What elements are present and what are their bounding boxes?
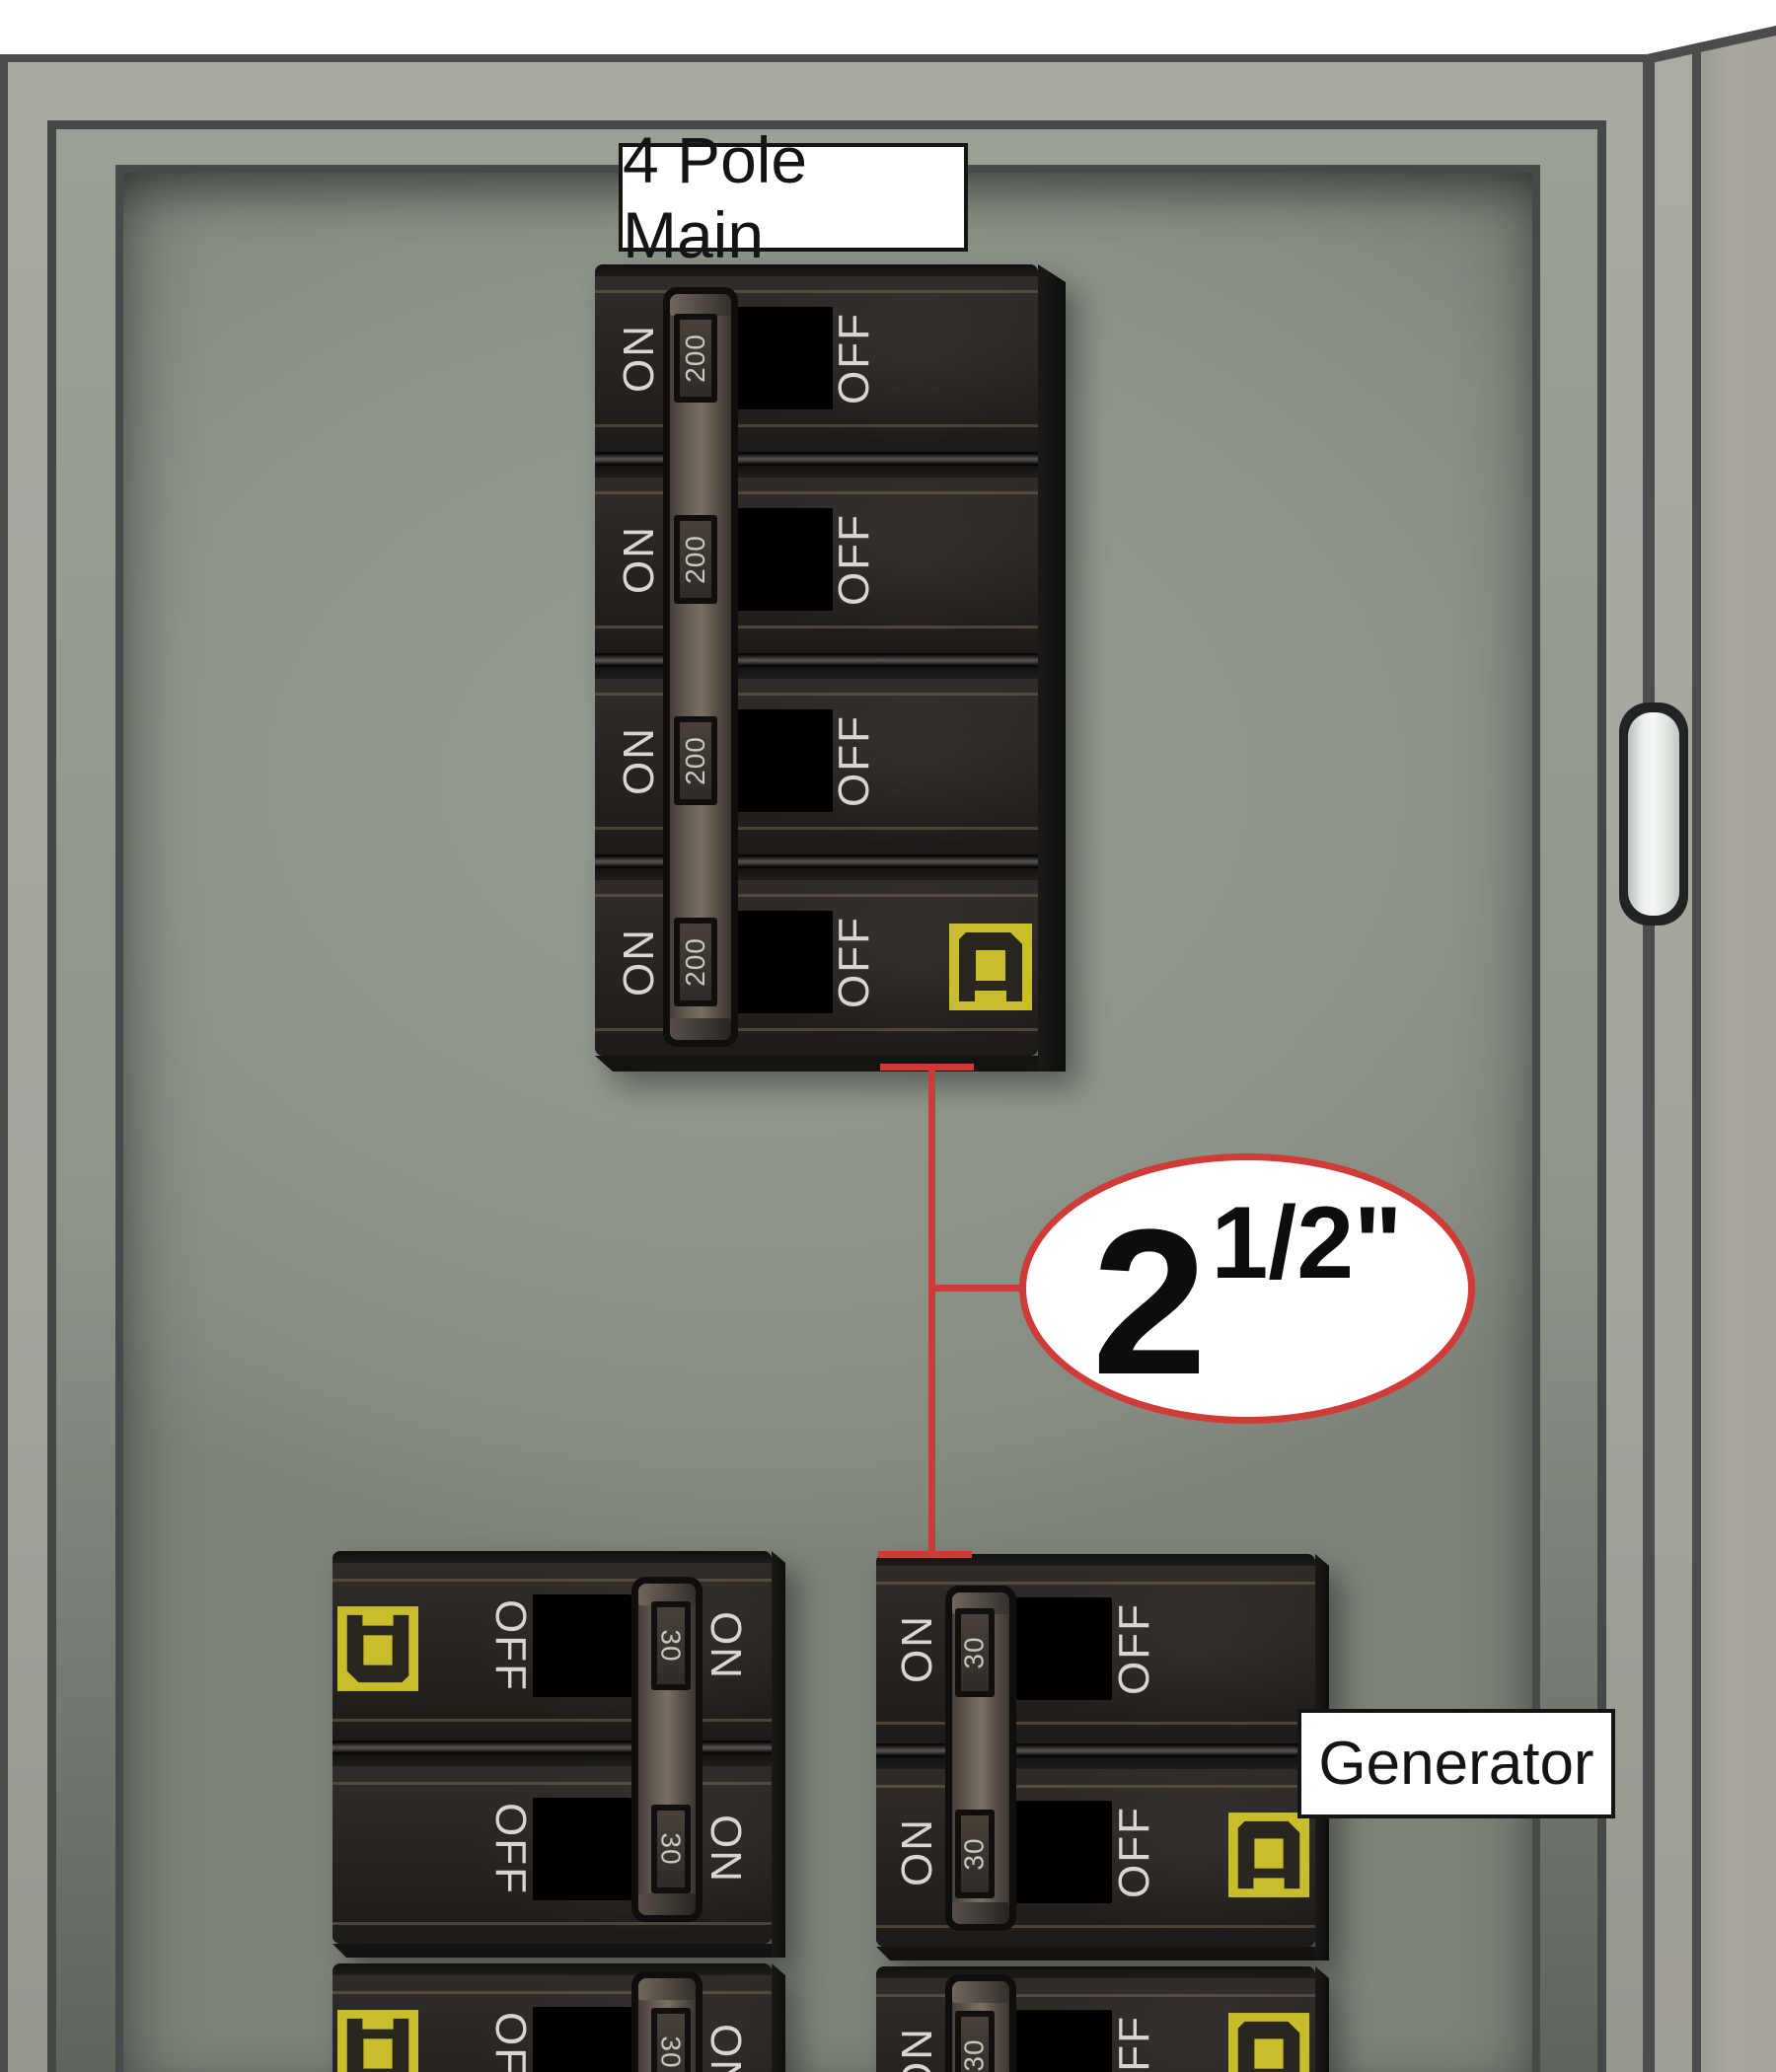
- conduit-size-callout: 2 1/2": [1019, 1153, 1475, 1424]
- handle-slot: [533, 2007, 631, 2072]
- square-d-logo-icon: [337, 2010, 418, 2072]
- gen-pole1-off-label: OFF: [1111, 1570, 1158, 1728]
- rating-text: 200: [680, 333, 711, 383]
- pinstripe: [876, 1582, 1315, 1585]
- pinstripe: [876, 1994, 1315, 1997]
- main-pole4-off-label: OFF: [831, 883, 878, 1041]
- conduit-tick-bottom: [878, 1551, 972, 1558]
- handle-cap: [952, 1981, 1009, 2003]
- generator-label: Generator: [1297, 1709, 1615, 1818]
- handle-slot: [533, 1798, 631, 1900]
- conduit-size-whole: 2: [1092, 1199, 1208, 1406]
- main-breaker-label: 4 Pole Main: [619, 143, 968, 252]
- breaker-bottom-edge: [333, 1944, 772, 1958]
- pole-gap: [595, 452, 1038, 466]
- right-partial-breaker: ON 30 OFF: [876, 1966, 1344, 2072]
- left-breaker: OFF OFF 30 30 ON ON: [333, 1551, 800, 1958]
- rating-window: 200: [674, 918, 717, 1006]
- pinstripe: [876, 1785, 1315, 1788]
- square-d-logo-icon: [1228, 1813, 1309, 1897]
- rating-text: 30: [655, 1629, 687, 1662]
- handle-cap: [638, 1893, 696, 1915]
- left-pole1-on-label: ON: [702, 1567, 749, 1725]
- handle-cap: [670, 1018, 731, 1040]
- rating-window: 200: [674, 515, 717, 604]
- handle-slot: [737, 508, 833, 611]
- conduit-size-fraction: 1/2": [1211, 1192, 1402, 1295]
- rating-text: 30: [959, 1636, 991, 1668]
- rating-window: 30: [955, 1810, 995, 1898]
- breaker-side-edge: [1038, 264, 1066, 1072]
- main-pole1-on-label: ON: [616, 279, 663, 437]
- conduit-line-branch: [931, 1285, 1026, 1292]
- breaker-side-edge: [772, 1963, 785, 2072]
- rating-text: 200: [680, 535, 711, 584]
- conduit-tick-top: [880, 1064, 974, 1071]
- gen-pole2-off-label: OFF: [1111, 1773, 1158, 1931]
- pinstripe: [876, 1722, 1315, 1725]
- door-latch-handle[interactable]: [1628, 712, 1679, 916]
- rating-window: 30: [955, 2011, 995, 2072]
- main-pole1-off-label: OFF: [831, 279, 878, 437]
- generator-breaker: ON ON 30 30 OFF OFF: [876, 1554, 1344, 1961]
- main-breaker: ON ON ON ON 200 200 200 200 OFF OFF OFF …: [595, 264, 1069, 1073]
- rating-text: 30: [959, 2038, 991, 2071]
- handle-slot: [1016, 2010, 1112, 2072]
- square-d-logo-icon: [337, 1606, 418, 1691]
- pole-gap: [595, 653, 1038, 667]
- handle-slot: [1016, 1801, 1112, 1903]
- rating-text: 30: [959, 1837, 991, 1870]
- breaker-side-edge: [772, 1551, 785, 1958]
- rating-text: 200: [680, 736, 711, 785]
- square-d-logo-icon: [949, 924, 1032, 1010]
- gen-pole1-on-label: ON: [894, 1570, 941, 1728]
- left-partial-breaker: OFF 30 ON: [333, 1963, 800, 2072]
- left-partial-off-label: OFF: [486, 1979, 534, 2072]
- handle-slot: [533, 1594, 631, 1697]
- rating-window: 200: [674, 716, 717, 805]
- door-jamb-gap: [1655, 0, 1692, 2072]
- panel-scene: ON ON ON ON 200 200 200 200 OFF OFF OFF …: [0, 0, 1776, 2072]
- handle-slot: [737, 911, 833, 1013]
- left-pole2-on-label: ON: [702, 1770, 749, 1928]
- main-pole3-off-label: OFF: [831, 682, 878, 840]
- left-partial-on-label: ON: [702, 1979, 749, 2072]
- rating-window: 30: [651, 1601, 691, 1690]
- handle-slot: [1016, 1597, 1112, 1700]
- pinstripe: [876, 1925, 1315, 1928]
- rating-text: 30: [655, 1832, 687, 1865]
- main-pole4-on-label: ON: [616, 883, 663, 1041]
- rating-window: 30: [955, 1608, 995, 1697]
- left-pole2-off-label: OFF: [486, 1770, 534, 1928]
- main-pole3-on-label: ON: [616, 682, 663, 840]
- rating-text: 200: [680, 937, 711, 987]
- pole-gap: [595, 854, 1038, 868]
- gen-pole2-on-label: ON: [894, 1773, 941, 1931]
- cabinet-side: [1701, 0, 1776, 2072]
- right-partial-on-label: ON: [894, 1982, 941, 2072]
- cabinet-edge-line: [1692, 0, 1701, 2072]
- rating-window: 30: [651, 2008, 691, 2072]
- handle-slot: [737, 709, 833, 812]
- handle-slot: [737, 307, 833, 409]
- conduit-line-vertical: [928, 1067, 935, 1558]
- rating-text: 30: [655, 2035, 687, 2068]
- square-d-logo-icon: [1228, 2013, 1309, 2072]
- pole-gap: [333, 1740, 772, 1754]
- handle-cap: [952, 1902, 1009, 1924]
- rating-window: 30: [651, 1805, 691, 1893]
- left-pole1-off-label: OFF: [486, 1567, 534, 1725]
- main-pole2-on-label: ON: [616, 481, 663, 638]
- right-partial-off-label: OFF: [1111, 1982, 1158, 2072]
- rating-window: 200: [674, 314, 717, 403]
- breaker-side-edge: [1315, 1966, 1329, 2072]
- breaker-bottom-edge: [876, 1947, 1315, 1961]
- handle-cap: [638, 1978, 696, 2000]
- pole-gap: [876, 1743, 1315, 1757]
- handle-cap: [670, 294, 731, 316]
- main-pole2-off-label: OFF: [831, 481, 878, 638]
